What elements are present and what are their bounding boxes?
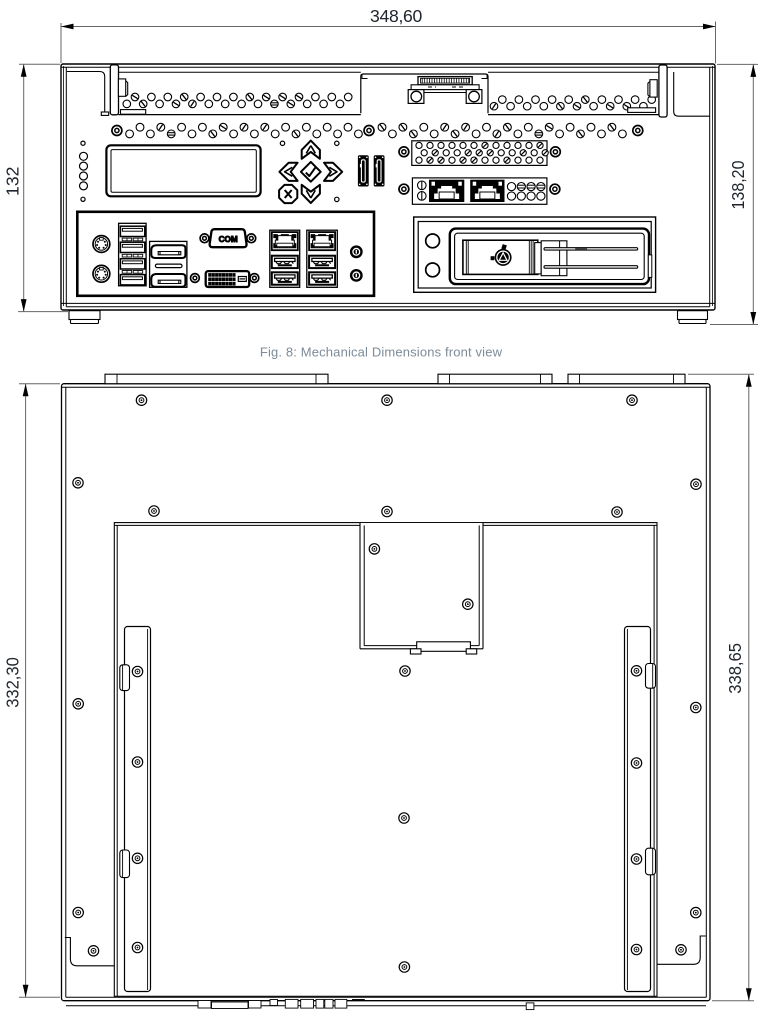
svg-text:COM: COM bbox=[219, 235, 238, 244]
svg-text:348,60: 348,60 bbox=[370, 6, 423, 26]
svg-text:332,30: 332,30 bbox=[3, 657, 23, 708]
svg-text:138,20: 138,20 bbox=[728, 161, 748, 210]
svg-text:132: 132 bbox=[3, 167, 23, 196]
svg-text:Fig. 8: Mechanical Dimensions: Fig. 8: Mechanical Dimensions front view bbox=[260, 345, 503, 360]
svg-text:338,65: 338,65 bbox=[726, 643, 746, 694]
